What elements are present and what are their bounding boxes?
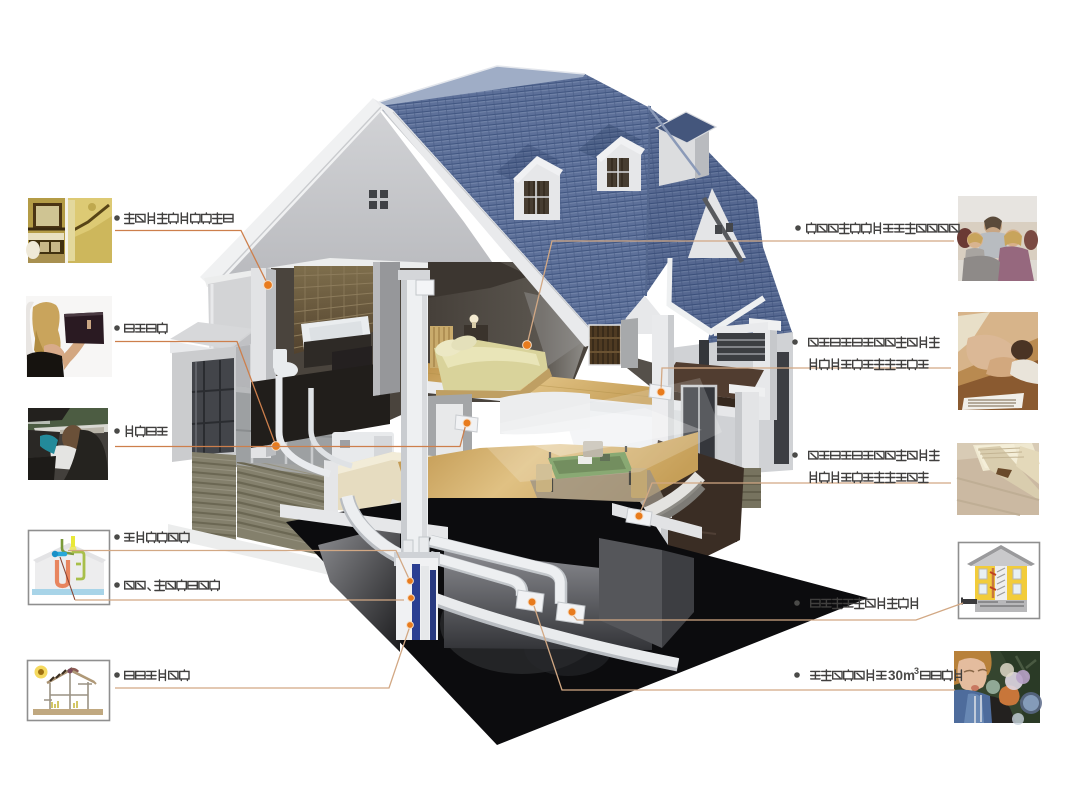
svg-text:30m: 30m: [888, 668, 915, 683]
svg-text:3: 3: [914, 666, 919, 676]
